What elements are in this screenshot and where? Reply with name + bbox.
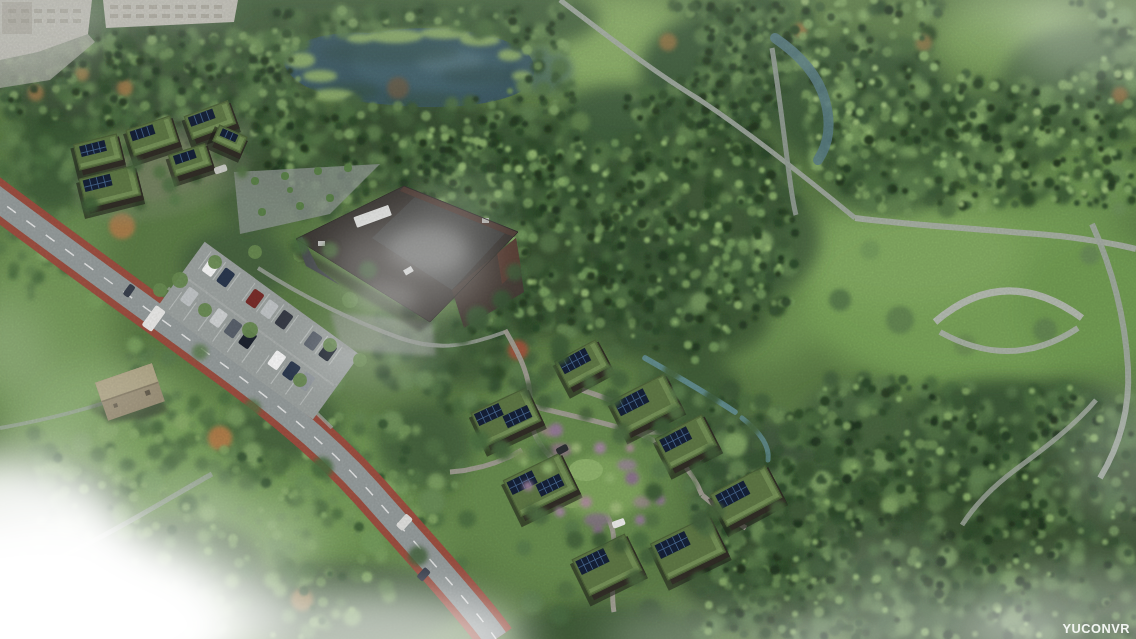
- svg-text:YUCONVR: YUCONVR: [1063, 621, 1131, 636]
